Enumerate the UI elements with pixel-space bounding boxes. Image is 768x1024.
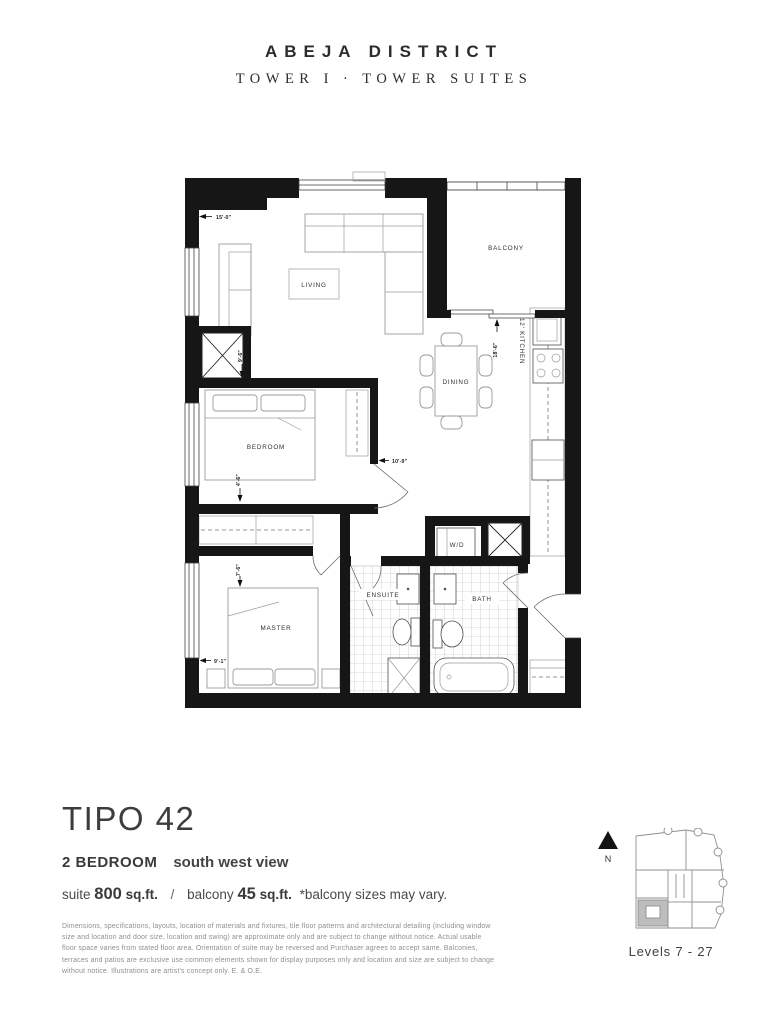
queen-bed	[205, 390, 315, 480]
suite-unit: sq.ft.	[126, 887, 158, 902]
brand-title: ABEJA DISTRICT	[0, 42, 768, 62]
svg-text:9'-6": 9'-6"	[238, 350, 244, 363]
master-bed	[207, 588, 340, 688]
dimension-kitchen-dining: 18'-6"	[493, 319, 500, 358]
view-direction: south west view	[173, 854, 288, 871]
legal-disclaimer: Dimensions, specifications, layouts, loc…	[62, 921, 498, 977]
svg-text:N: N	[605, 854, 612, 864]
balcony-unit: sq.ft.	[260, 887, 292, 902]
svg-text:15'-0": 15'-0"	[216, 215, 232, 221]
levels-label: Levels 7 - 27	[596, 944, 746, 959]
dimension-master-width: 9'-1"	[200, 658, 227, 665]
balcony-sliding-door	[449, 310, 535, 318]
room-label-bath: BATH	[472, 596, 492, 603]
svg-text:18'-6": 18'-6"	[493, 342, 499, 358]
room-label-balcony: BALCONY	[488, 245, 524, 252]
room-label-bedroom: BEDROOM	[247, 444, 285, 451]
bedroom-closet	[346, 390, 368, 456]
dimension-bedroom-depth: 4'-6"	[236, 474, 243, 502]
bedroom-count: 2 BEDROOM	[62, 854, 157, 871]
plan-name: TIPO 42	[62, 800, 447, 838]
ensuite-toilet	[411, 618, 420, 646]
room-label-living: LIVING	[301, 282, 326, 289]
sectional-sofa	[305, 214, 423, 334]
bath-floor	[430, 566, 518, 698]
suite-label: suite	[62, 887, 91, 902]
svg-text:4'-6": 4'-6"	[236, 474, 242, 487]
loveseat	[219, 244, 251, 336]
tower-subtitle: TOWER I · TOWER SUITES	[0, 71, 768, 88]
svg-text:9'-1": 9'-1"	[214, 659, 227, 665]
balcony-label: balcony	[187, 887, 234, 902]
ensuite-floor	[350, 566, 420, 698]
master-closet	[199, 516, 313, 544]
svg-text:7'-6": 7'-6"	[236, 564, 242, 577]
floorplan-drawing: LIVING BALCONY DINING BEDROOM MASTER ENS…	[183, 168, 583, 713]
building-outline	[636, 828, 727, 928]
room-label-wd: W/D	[450, 542, 465, 549]
balcony-area: 45	[237, 885, 255, 903]
keyplan-drawing: N	[596, 828, 746, 936]
dimension-living-width: 15'-0"	[199, 214, 232, 221]
balcony-railing	[447, 182, 565, 190]
svg-text:10'-9": 10'-9"	[392, 459, 408, 465]
suite-area: 800	[94, 885, 122, 903]
room-label-kitchen: 12' KITCHEN	[518, 318, 525, 364]
separator: /	[171, 887, 175, 902]
suite-details: TIPO 42 2 BEDROOMsouth west view suite 8…	[62, 800, 447, 904]
dimension-master-depth: 7'-6"	[236, 564, 243, 587]
room-label-ensuite: ENSUITE	[367, 592, 400, 599]
north-arrow-icon: N	[598, 831, 618, 864]
room-label-dining: DINING	[443, 379, 470, 386]
room-label-master: MASTER	[260, 625, 291, 632]
balcony-note: *balcony sizes may vary.	[300, 887, 448, 902]
dimension-bedroom-width: 10'-9"	[379, 458, 408, 465]
kitchen-counter	[530, 308, 565, 556]
keyplan: N Levels 7 - 27	[596, 828, 746, 959]
stove	[533, 349, 563, 383]
